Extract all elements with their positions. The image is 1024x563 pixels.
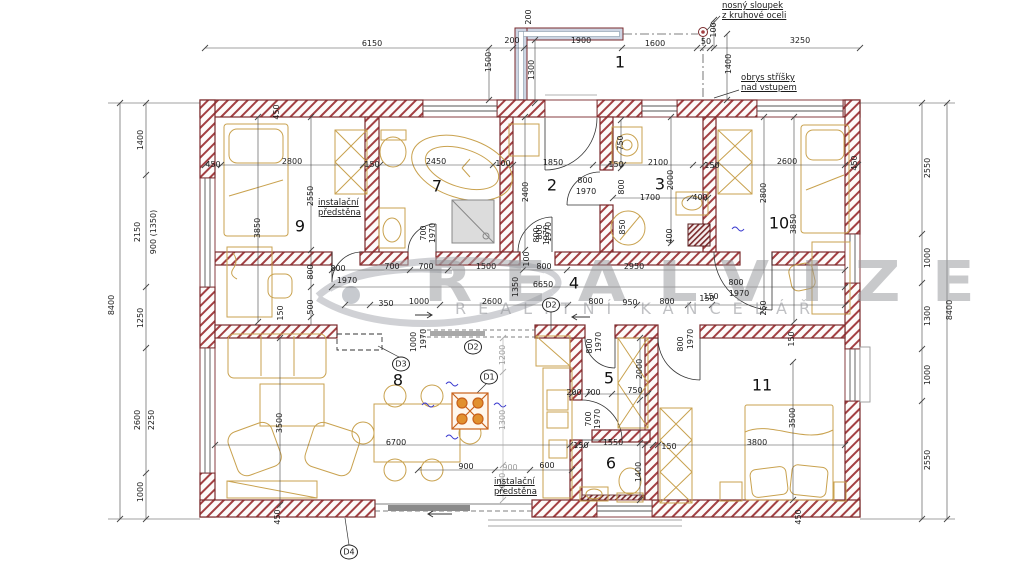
watermark-subtitle: REALITNÍ KANCELÁŘ [455, 299, 822, 318]
floorplan-canvas: REALVIZE REALITNÍ KANCELÁŘ 6150200190016… [0, 0, 1024, 563]
